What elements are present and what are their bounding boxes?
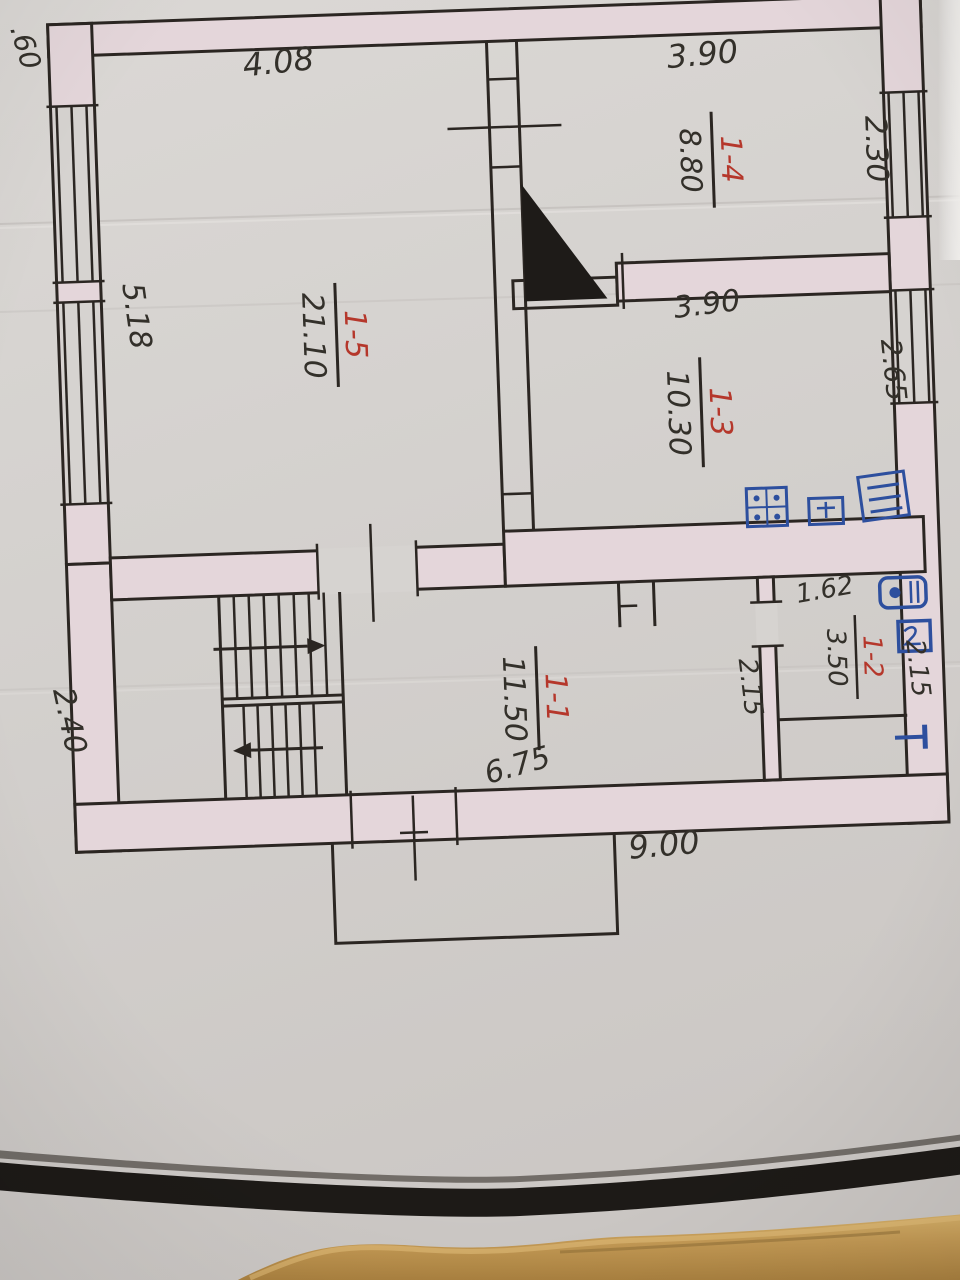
floor-plan-photo: .60 4.08 3.90 2.30 5.18 3.90 2.65 1.62 2… <box>0 0 960 1280</box>
photo-vignette <box>0 0 960 1280</box>
floor-plan-drawing: .60 4.08 3.90 2.30 5.18 3.90 2.65 1.62 2… <box>0 0 960 1280</box>
